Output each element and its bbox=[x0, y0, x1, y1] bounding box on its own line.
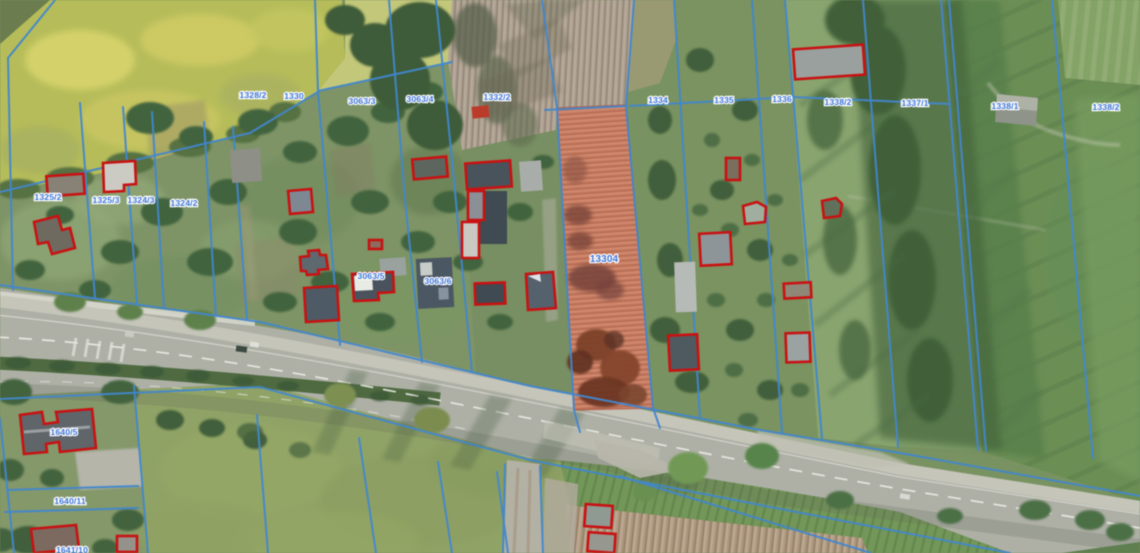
svg-text:3063/3: 3063/3 bbox=[348, 96, 375, 106]
svg-text:1325/2: 1325/2 bbox=[34, 192, 61, 202]
svg-text:1334: 1334 bbox=[648, 95, 668, 105]
svg-text:3063/5: 3063/5 bbox=[357, 271, 384, 281]
svg-text:1324/3: 1324/3 bbox=[127, 195, 154, 205]
svg-text:13304: 13304 bbox=[590, 254, 619, 265]
svg-text:1330: 1330 bbox=[284, 91, 304, 101]
svg-text:1337/1: 1337/1 bbox=[901, 98, 928, 108]
svg-text:1328/2: 1328/2 bbox=[239, 90, 266, 100]
svg-text:1325/3: 1325/3 bbox=[92, 195, 119, 205]
svg-text:3063/4: 3063/4 bbox=[406, 94, 433, 104]
svg-text:1338/1: 1338/1 bbox=[991, 101, 1018, 111]
svg-text:3063/6: 3063/6 bbox=[424, 276, 451, 286]
svg-text:1335: 1335 bbox=[714, 95, 734, 105]
svg-text:1640/11: 1640/11 bbox=[54, 496, 86, 506]
svg-text:1332/2: 1332/2 bbox=[483, 92, 510, 102]
svg-text:1336: 1336 bbox=[772, 94, 792, 104]
svg-text:1640/5: 1640/5 bbox=[50, 427, 77, 437]
svg-text:1641/10: 1641/10 bbox=[56, 545, 88, 553]
svg-text:1338/2: 1338/2 bbox=[1092, 102, 1119, 112]
svg-text:1338/2: 1338/2 bbox=[824, 97, 851, 107]
svg-text:1324/2: 1324/2 bbox=[170, 198, 197, 208]
